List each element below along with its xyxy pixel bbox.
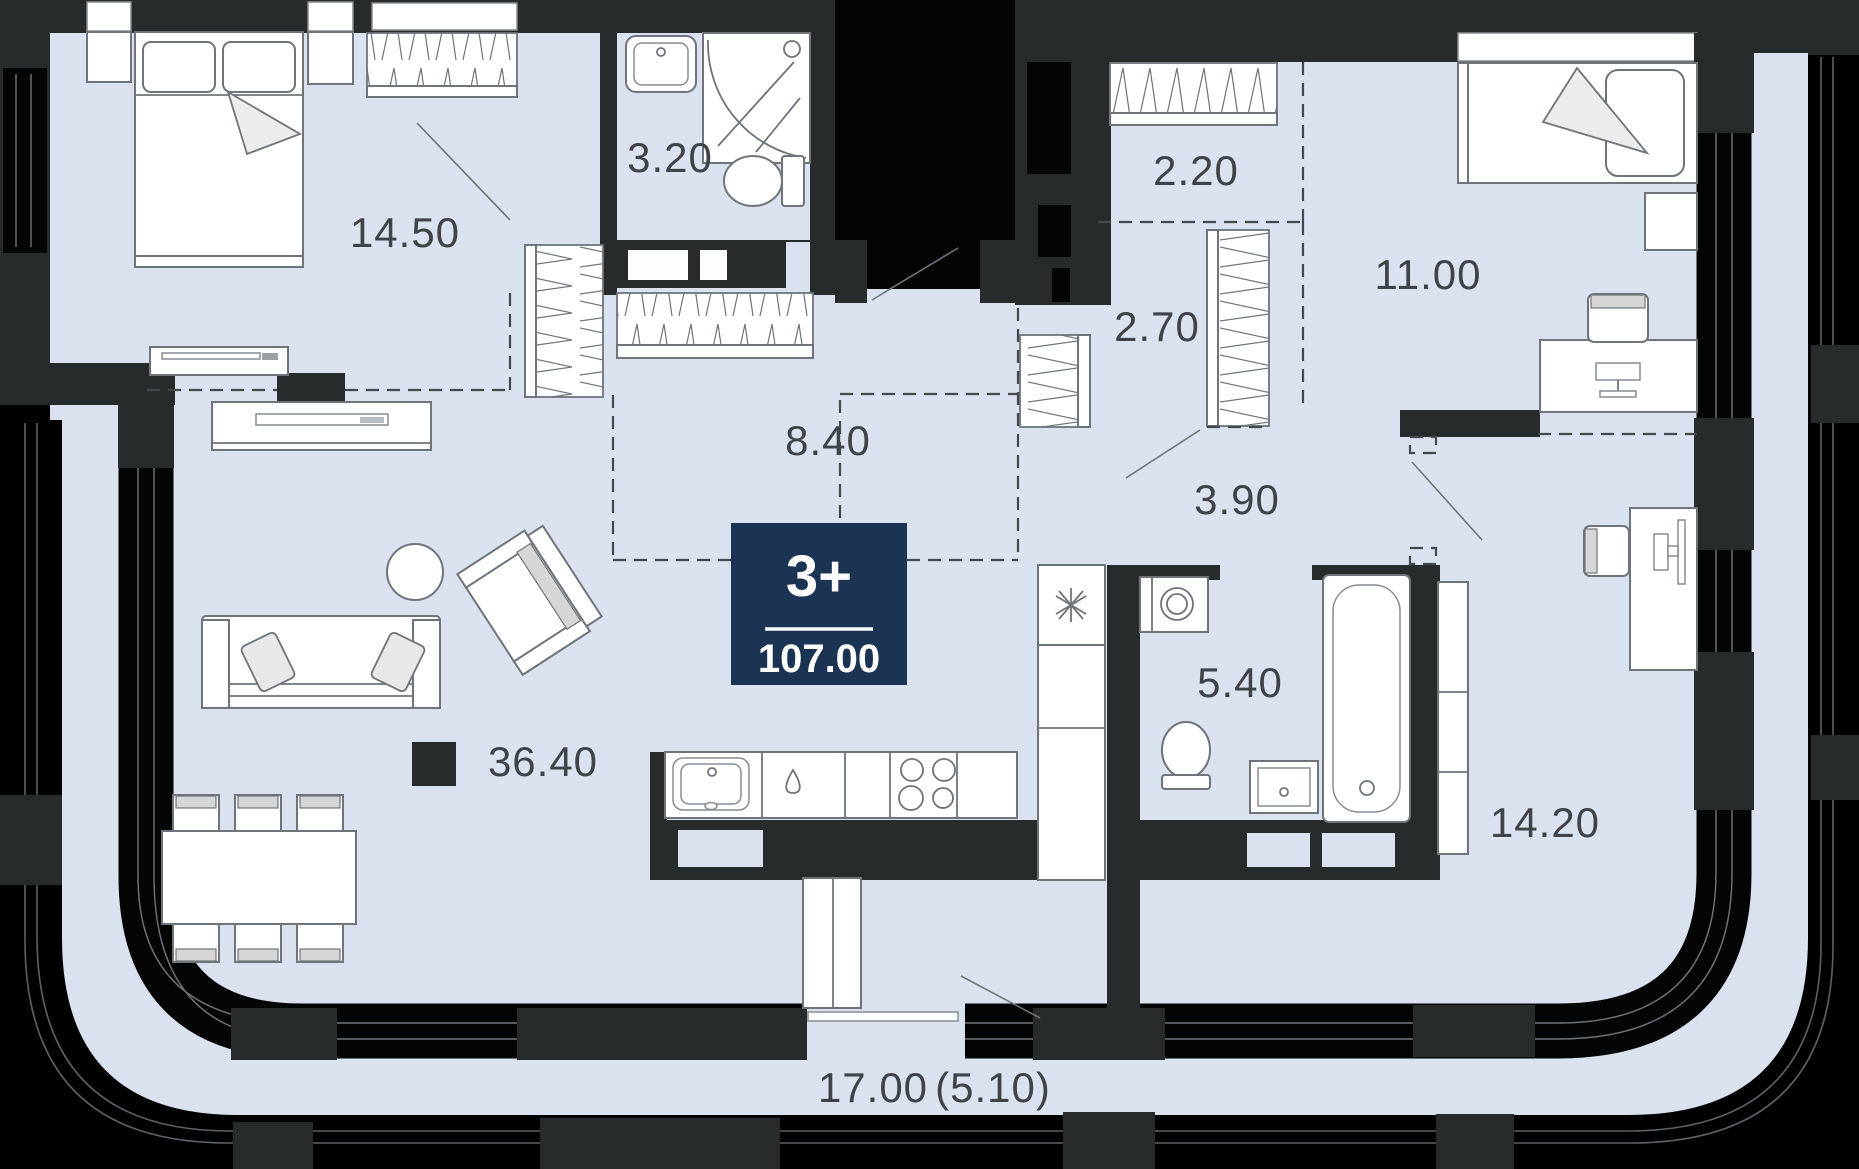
balcony-door-leaf-icon bbox=[808, 1012, 958, 1021]
floor-plan-canvas: 14.50 3.20 2.20 11.00 2.70 8.40 3.90 36.… bbox=[0, 0, 1859, 1169]
room-area-label-bedroom-second: 11.00 bbox=[1375, 251, 1482, 298]
column-icon bbox=[412, 742, 456, 786]
wall-bedroom-bottom bbox=[277, 373, 345, 403]
toilet-icon bbox=[724, 156, 804, 206]
window-top-2 bbox=[308, 2, 353, 31]
wardrobe-icon bbox=[367, 33, 517, 97]
desk-chair-icon bbox=[1588, 294, 1648, 342]
terrace-coefficient-label: (5.10) bbox=[935, 1064, 1051, 1111]
wardrobe-icon bbox=[1020, 335, 1090, 427]
bathroom-small-door-gap bbox=[786, 242, 810, 288]
room-area-label-closet: 2.70 bbox=[1114, 303, 1200, 350]
window-left-bedroom bbox=[3, 68, 47, 253]
room-area-label-hallway: 8.40 bbox=[785, 417, 871, 464]
room-area-label-bathroom-small: 3.20 bbox=[627, 134, 713, 181]
kitchen-sink-icon bbox=[673, 758, 749, 810]
kitchen-counter-icon bbox=[665, 752, 1017, 818]
window-top-3 bbox=[372, 3, 517, 30]
single-bed-icon bbox=[1458, 63, 1697, 183]
floor-plan-svg: 14.50 3.20 2.20 11.00 2.70 8.40 3.90 36.… bbox=[0, 0, 1859, 1169]
vanity-sink-icon bbox=[1250, 761, 1318, 813]
washing-machine-icon bbox=[1140, 577, 1208, 632]
badge-rooms-count: 3+ bbox=[786, 544, 852, 609]
tall-cabinet-icon bbox=[1038, 645, 1105, 880]
nightstand-icon bbox=[308, 32, 353, 84]
coat-closet-icon bbox=[617, 293, 813, 358]
bathtub-icon bbox=[1323, 575, 1410, 822]
sink-icon bbox=[626, 36, 696, 92]
room-area-label-bedroom-main: 14.50 bbox=[350, 209, 460, 256]
desk-icon bbox=[1630, 508, 1697, 670]
balcony-door-gap bbox=[805, 1002, 965, 1060]
fridge-icon bbox=[1038, 565, 1105, 645]
tv-console-icon bbox=[212, 402, 431, 450]
entrance-door-gap bbox=[867, 289, 980, 303]
washer-niche-icon bbox=[628, 250, 688, 280]
room-area-label-wardrobe-hall: 2.20 bbox=[1153, 147, 1239, 194]
desk-chair-icon bbox=[1584, 526, 1629, 576]
wall-bedroom2-bottom bbox=[1400, 410, 1540, 437]
nightstand-icon bbox=[1645, 193, 1697, 250]
window-bedroom-second bbox=[1458, 33, 1697, 61]
wardrobe-icon bbox=[1110, 63, 1277, 125]
wall-bath-left bbox=[1107, 565, 1140, 1008]
room-area-label-living-kitchen: 36.40 bbox=[488, 738, 598, 785]
sofa-icon bbox=[202, 616, 440, 708]
terrace-area-label: 17.00 bbox=[818, 1064, 928, 1111]
wardrobe-icon bbox=[525, 245, 603, 397]
apartment-badge: 3+ 107.00 bbox=[731, 523, 907, 685]
room-area-label-bathroom-main: 5.40 bbox=[1197, 659, 1283, 706]
wardrobe-icon bbox=[1438, 582, 1468, 854]
nightstand-icon bbox=[87, 32, 131, 82]
wardrobe-icon bbox=[1207, 230, 1269, 426]
shower-cabin-icon bbox=[703, 33, 810, 163]
bar-partition-icon bbox=[803, 878, 861, 1008]
tv-console-icon bbox=[150, 347, 288, 375]
toilet-icon bbox=[1162, 722, 1210, 789]
room-area-label-corridor: 3.90 bbox=[1194, 476, 1280, 523]
desk-icon bbox=[1540, 340, 1697, 412]
cabinet-niche-icon bbox=[700, 250, 727, 280]
coffee-table-icon bbox=[387, 544, 443, 600]
double-bed-icon bbox=[135, 32, 303, 267]
window-top-1 bbox=[87, 2, 131, 31]
dining-table-icon bbox=[162, 795, 356, 962]
room-area-label-room-office: 14.20 bbox=[1490, 799, 1600, 846]
badge-total-area: 107.00 bbox=[758, 637, 880, 681]
